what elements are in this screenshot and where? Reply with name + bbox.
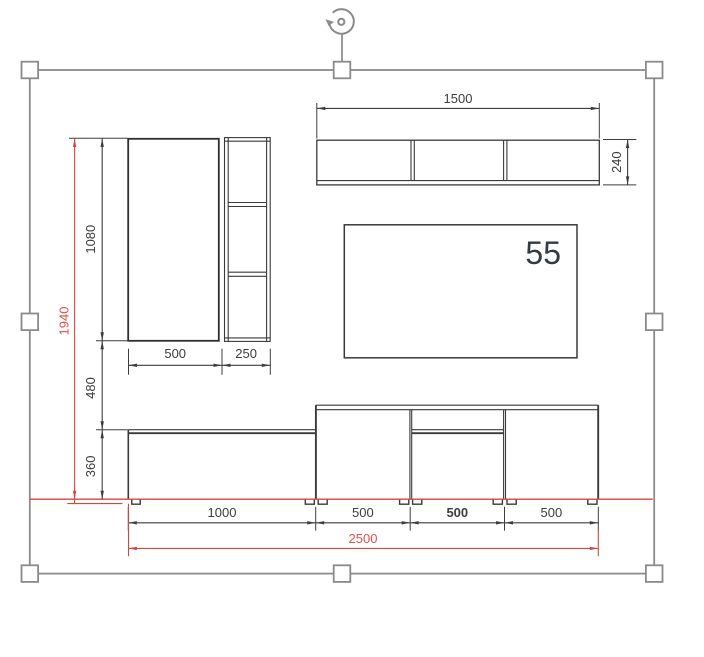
svg-text:1080: 1080: [83, 225, 98, 254]
svg-text:480: 480: [83, 377, 98, 399]
svg-text:500: 500: [164, 346, 186, 361]
svg-text:500: 500: [446, 505, 468, 520]
svg-text:55: 55: [525, 235, 561, 271]
svg-text:500: 500: [352, 505, 374, 520]
svg-text:2500: 2500: [349, 531, 378, 546]
svg-text:250: 250: [235, 346, 257, 361]
svg-text:1000: 1000: [208, 505, 237, 520]
svg-text:1940: 1940: [57, 307, 72, 336]
svg-text:1500: 1500: [444, 91, 473, 106]
svg-text:500: 500: [541, 505, 563, 520]
svg-text:360: 360: [83, 456, 98, 478]
svg-text:240: 240: [609, 151, 624, 173]
